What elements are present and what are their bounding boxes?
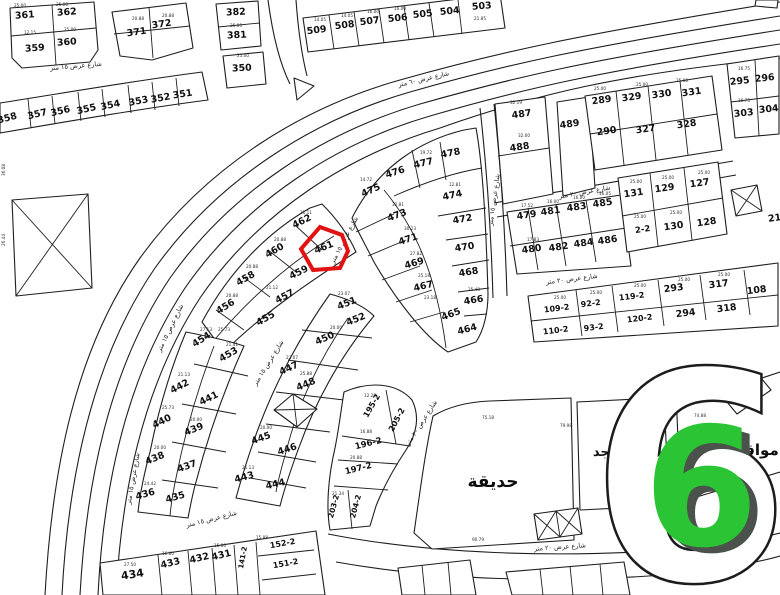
dimension-mark: 25.88 [300,371,312,376]
dimension-mark: 25.18 [418,273,430,278]
plot-number: 359 [25,42,46,54]
dimension-mark: 20.00 [154,445,166,450]
dimension-mark: 16.00 [394,6,406,11]
dimension-mark: 16.00 [367,9,379,14]
dimension-mark: 15.88 [256,535,268,540]
dimension-mark: 25.00 [590,290,602,295]
plot-number: 506 [387,12,408,25]
dimension-mark: 23.18 [424,295,436,300]
cadastral-subdivision-map: 25.0025.0012.1525.0020.8820.8825.0025.00… [0,0,780,595]
area-name: حديقة [468,472,519,492]
partial-block-top-right [755,0,778,8]
dimension-mark: 16.75 [738,98,750,103]
sheet-number-digit: 6 [644,392,759,584]
dimension-mark: 25.00 [64,27,76,32]
plot-number: 2-2 [634,224,651,236]
dimension-mark: 12.81 [449,182,461,187]
dimension-mark: 20.88 [246,264,258,269]
dimension-mark: 21.85 [474,16,486,21]
dimension-mark: 17.83 [527,237,539,242]
plot-number: 362 [57,6,78,18]
dimension-mark: 79.98 [560,423,572,428]
dimension-mark: 25.00 [630,179,642,184]
dimension-mark: 25.00 [230,23,242,28]
dimension-mark: 16.75 [738,66,750,71]
plot-number: 361 [15,9,36,21]
partial-block-bottom-a [398,560,476,595]
dimension-mark: 25.73 [162,405,174,410]
dimension-mark: 90.79 [472,537,484,542]
dimension-mark: 16.88 [360,429,372,434]
dimension-mark: 12.15 [24,30,36,35]
dimension-mark: 25.00 [718,272,730,277]
dimension-mark: 25.00 [636,82,648,87]
dimension-mark: 24.42 [144,481,156,486]
plot-number: 304 [758,103,779,116]
traffic-island-triangle [294,78,314,100]
dimension-mark: 25.00 [634,214,646,219]
dimension-mark: 19.72 [420,150,432,155]
dimension-mark: 17.52 [521,203,533,208]
dimension-mark: 25.00 [594,86,606,91]
dimension-mark: 14.05 [314,17,326,22]
dimension-mark: 21.13 [178,372,190,377]
plot-number: 295 [729,75,750,88]
dimension-mark: 16.00 [547,199,559,204]
dimension-mark: 23.07 [338,291,350,296]
dimension-mark: 25.48 [468,287,480,292]
dimension-mark: 20.88 [132,16,144,21]
dimension-mark: 30.23 [404,226,416,231]
dimension-mark: 32.81 [392,202,404,207]
plot-number: 382 [226,6,246,18]
dimension-mark: 27.50 [124,562,136,567]
street-name: شارع عرض ١٥ متر [184,509,237,530]
plot-number: 296 [754,72,775,85]
plot-number: 360 [57,36,78,48]
dimension-mark: 20.00 [330,325,342,330]
plot-number: 504 [439,5,460,18]
dimension-mark: 32.00 [518,133,530,138]
dimension-mark: 15.00 [214,543,226,548]
plot-number: 381 [227,29,247,41]
dimension-mark: 26.44 [1,234,6,246]
dimension-mark: 21.13 [242,465,254,470]
sheet-number-badge: 6 6 6 [589,312,780,595]
plot-number: 303 [733,107,754,120]
street-name: شارع عرض ٢٠ متر [533,541,586,553]
dimension-mark: 20.00 [260,425,272,430]
dimension-mark: 21.12 [266,285,278,290]
plot-number: 503 [471,0,492,13]
plot-number: 505 [412,8,433,21]
street-name: شارع عرض ٢٠ متر [544,272,598,286]
dimension-mark: 32.19 [510,100,522,105]
dimension-mark: 20.88 [226,293,238,298]
plot-number: 21 [767,212,780,225]
street-name: شارع عرض ٦٠ متر [396,69,449,89]
dimension-mark: 16.00 [162,551,174,556]
dimension-mark: 25.00 [698,170,710,175]
dimension-mark: 25.00 [676,78,688,83]
plot-number: 350 [232,62,253,74]
dimension-mark: 25.73 [218,327,230,332]
dimension-mark: 14.72 [360,177,372,182]
dimension-mark: 25.00 [634,283,646,288]
dimension-mark: 36.08 [1,164,6,176]
dimension-mark: 25.00 [554,295,566,300]
dimension-mark: 25.00 [237,53,249,58]
dimension-mark: 25.00 [14,3,26,8]
dimension-mark: 23.07 [286,355,298,360]
map-canvas: 25.0025.0012.1525.0020.8820.8825.0025.00… [0,0,780,595]
dimension-mark: 14.05 [341,13,353,18]
dimension-mark: 25.00 [662,175,674,180]
dimension-mark: 75.18 [482,415,494,420]
dimension-mark: 20.88 [350,455,362,460]
dimension-mark: 25.00 [670,210,682,215]
